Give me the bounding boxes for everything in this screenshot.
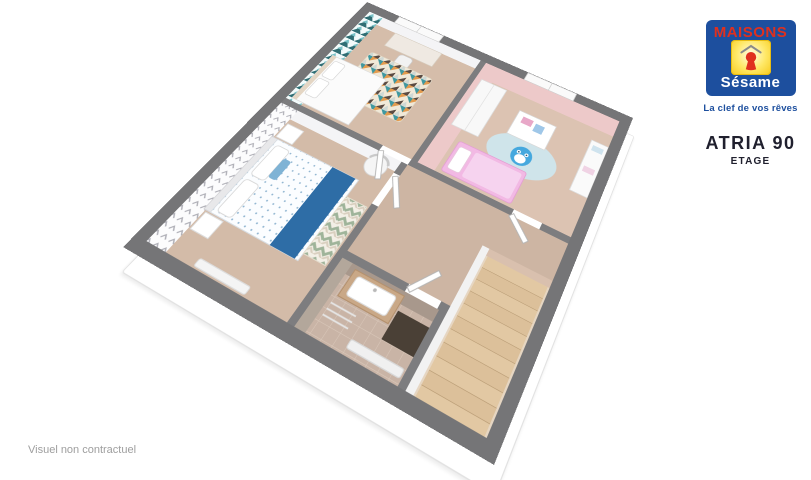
roof-icon [741, 46, 760, 52]
plan-title: ATRIA 90 [690, 133, 811, 154]
logo-sesame-text: Sésame [721, 75, 781, 90]
keyhole-icon [734, 42, 768, 74]
master-door [393, 176, 400, 208]
page: MAISONS Sésame La clef de vos rêves ATRI… [0, 0, 811, 480]
brand-column: MAISONS Sésame La clef de vos rêves ATRI… [690, 20, 811, 167]
maisons-sesame-logo: MAISONS Sésame [706, 20, 796, 96]
floorplan-3d [123, 2, 633, 465]
logo-maisons-text: MAISONS [714, 25, 788, 40]
plan-level-label: ETAGE [690, 156, 811, 167]
brand-tagline: La clef de vos rêves [690, 103, 811, 114]
logo-yellow-square [731, 40, 771, 75]
disclaimer-text: Visuel non contractuel [28, 444, 136, 456]
floorplan-svg [123, 2, 633, 465]
